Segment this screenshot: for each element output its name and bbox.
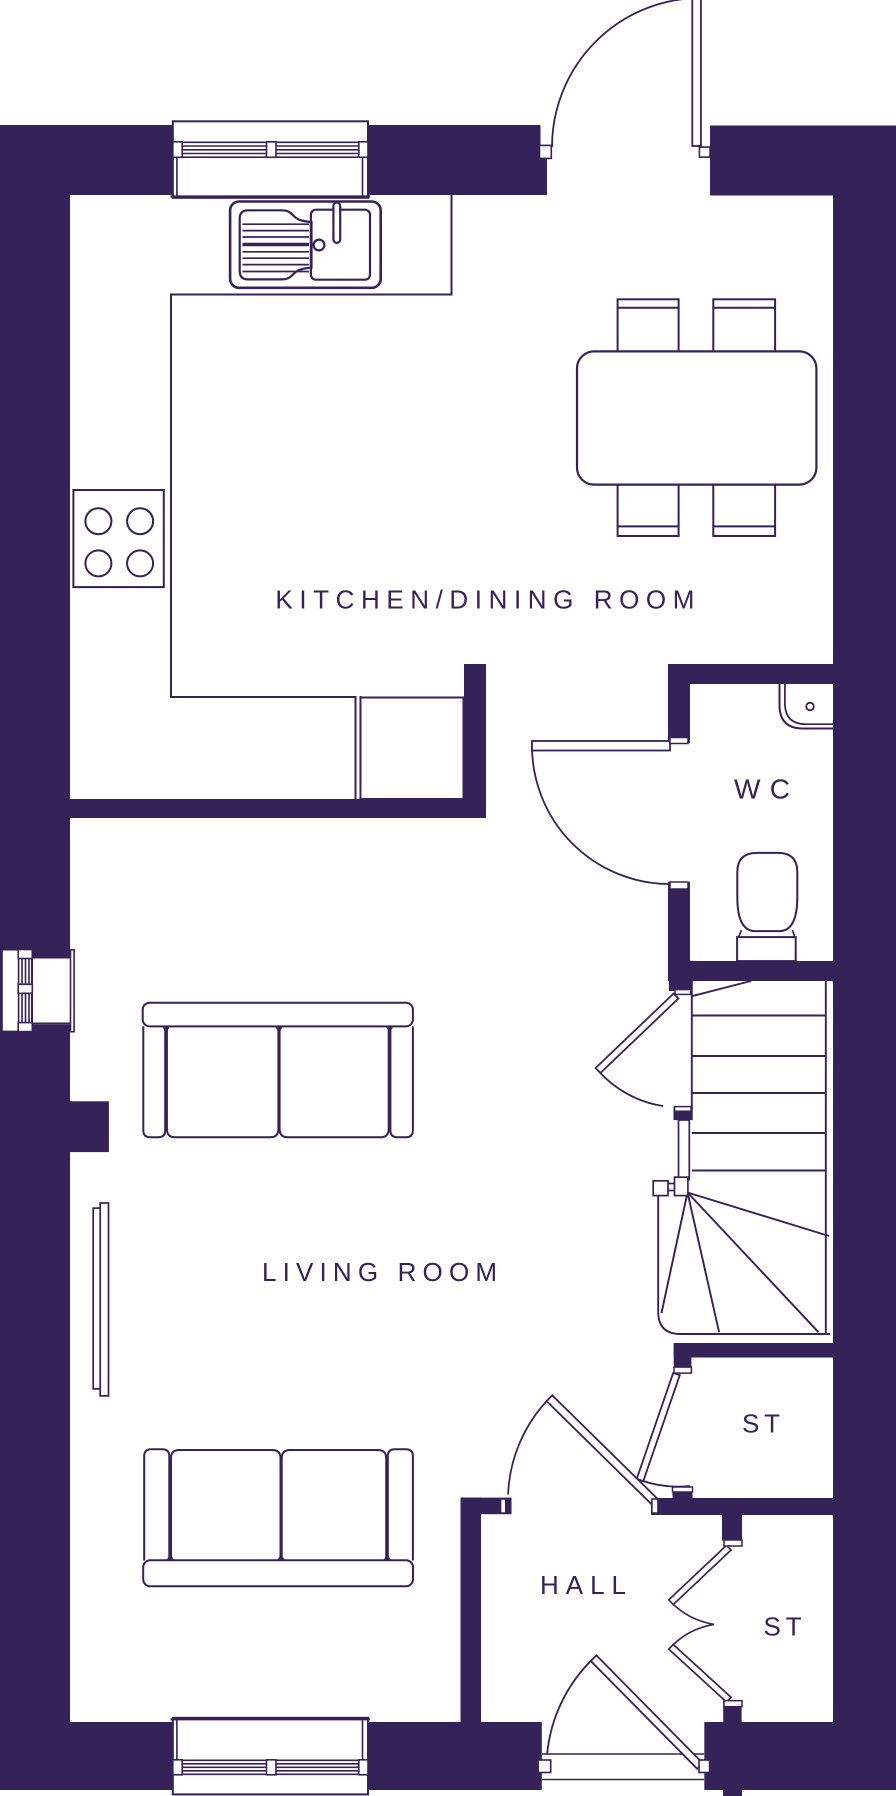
svg-text:ST: ST xyxy=(764,1611,802,1641)
svg-text:KITCHEN/DINING ROOM: KITCHEN/DINING ROOM xyxy=(275,584,694,614)
svg-text:HALL: HALL xyxy=(540,1570,626,1600)
svg-text:ST: ST xyxy=(742,1408,780,1438)
svg-text:WC: WC xyxy=(734,774,790,805)
svg-text:LIVING ROOM: LIVING ROOM xyxy=(262,1257,497,1287)
